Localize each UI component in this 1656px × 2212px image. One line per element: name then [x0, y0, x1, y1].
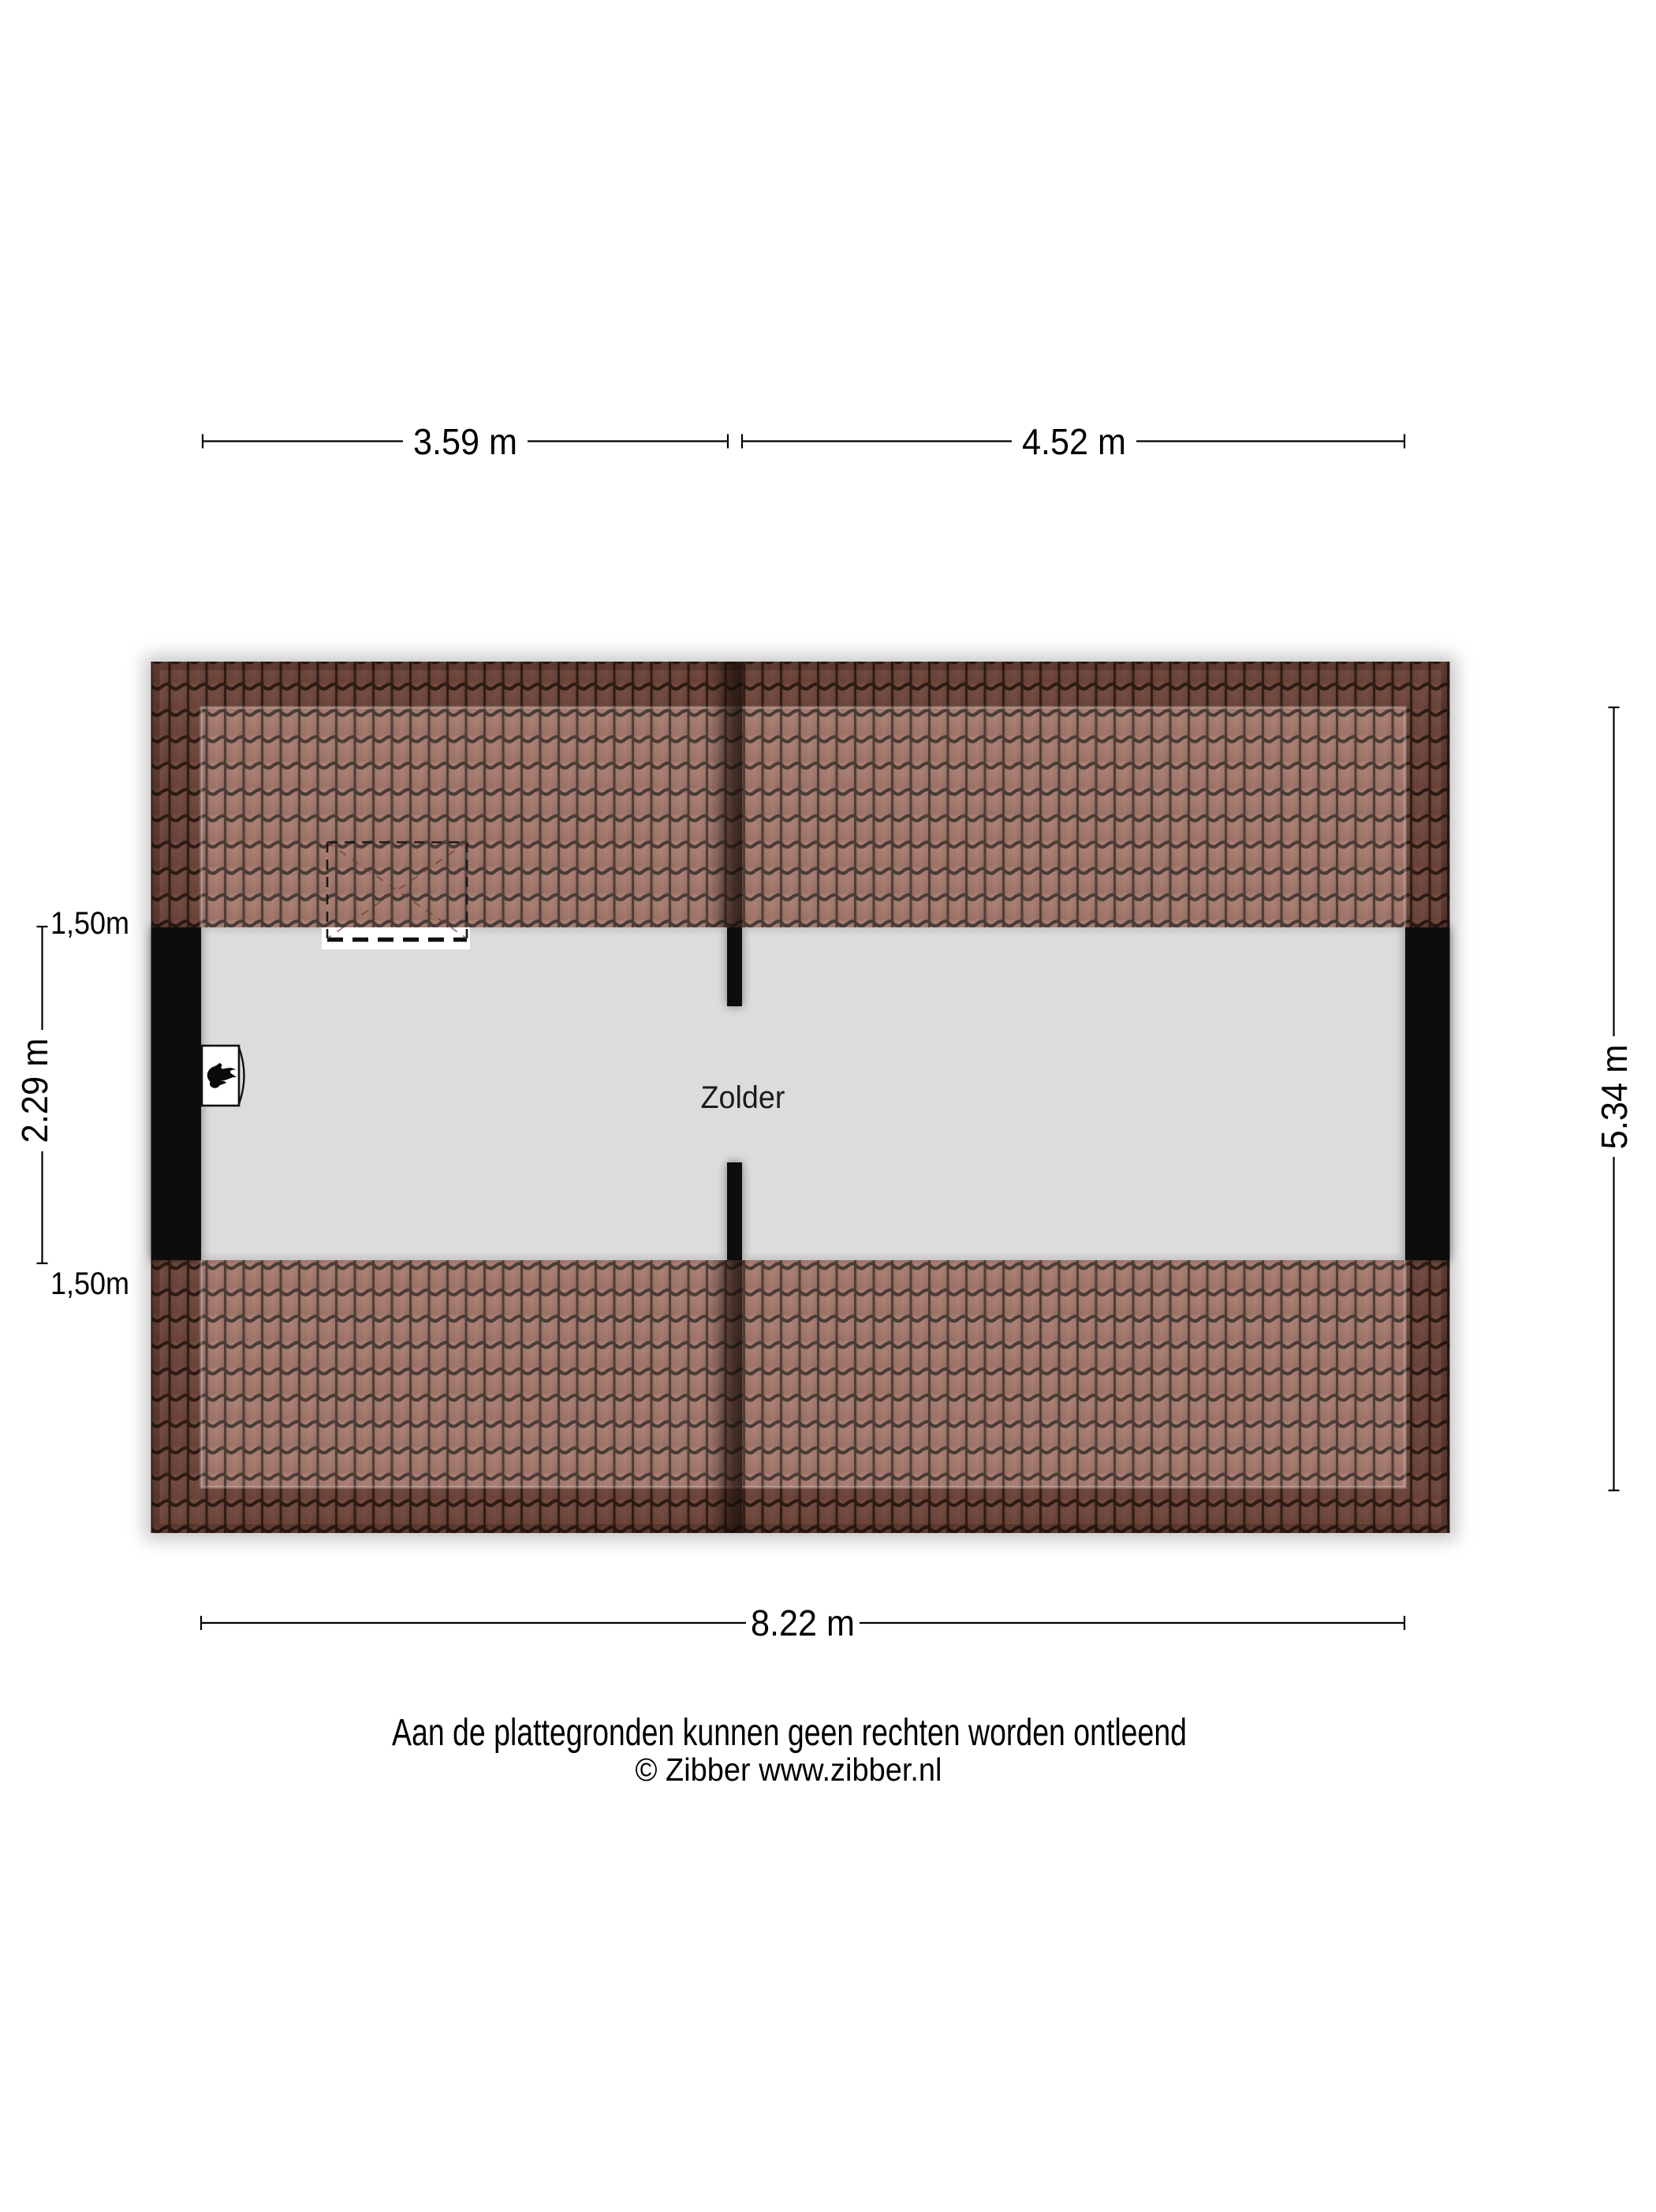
svg-text:Aan de plattegronden kunnen ge: Aan de plattegronden kunnen geen rechten… — [392, 1712, 1187, 1754]
svg-text:Zolder: Zolder — [701, 1080, 785, 1115]
svg-text:8.22 m: 8.22 m — [751, 1602, 855, 1643]
svg-text:2.29 m: 2.29 m — [14, 1039, 55, 1143]
svg-text:© Zibber www.zibber.nl: © Zibber www.zibber.nl — [636, 1751, 942, 1788]
svg-text:4.52 m: 4.52 m — [1022, 421, 1126, 462]
svg-text:3.59 m: 3.59 m — [413, 421, 517, 462]
svg-text:5.34 m: 5.34 m — [1594, 1045, 1635, 1150]
svg-text:1,50m: 1,50m — [50, 1266, 129, 1301]
svg-text:1,50m: 1,50m — [50, 906, 129, 941]
